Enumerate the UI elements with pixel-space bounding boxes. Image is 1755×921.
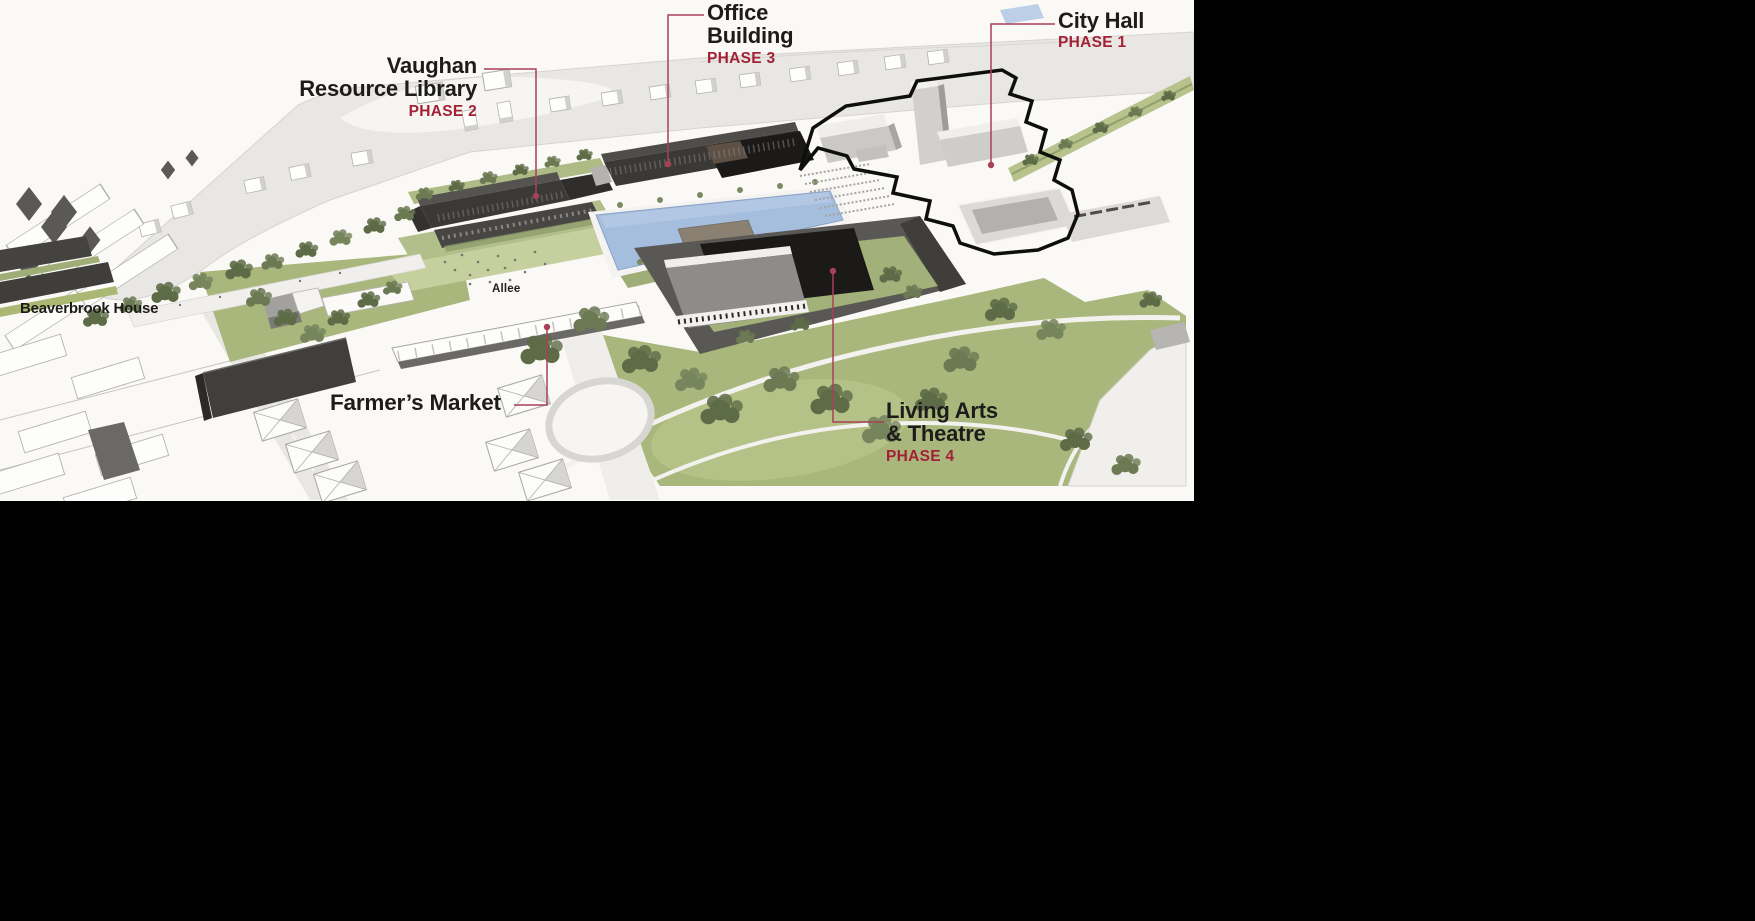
phase-tag: PHASE 3 [707,50,793,67]
label-farmers-market: Farmer’s Market [330,391,501,414]
label-text: Living Arts [886,399,998,422]
label-text: Allee [492,283,521,295]
phase-tag: PHASE 2 [255,103,477,120]
phase-tag: PHASE 4 [886,448,998,465]
label-text: City Hall [1058,9,1144,32]
label-beaverbrook-house: Beaverbrook House [20,301,158,317]
label-living-arts-theatre: Living Arts & Theatre PHASE 4 [886,399,998,465]
page: Vaughan Resource Library PHASE 2 Office … [0,0,1755,921]
label-vaughan-resource-library: Vaughan Resource Library PHASE 2 [255,54,477,120]
leader-dot-city-hall [988,162,994,168]
label-text: Vaughan [255,54,477,77]
label-text: Office [707,1,793,24]
label-text: Resource Library [255,77,477,100]
label-text: Building [707,24,793,47]
leader-dot-living-arts [830,268,836,274]
site-plan-scene [0,0,1194,501]
leader-dot-office [665,161,671,167]
leader-dot-vaughan [533,193,539,199]
label-city-hall: City Hall PHASE 1 [1058,9,1144,51]
label-text: Farmer’s Market [330,391,501,414]
leader-dot-farmers-market [544,324,550,330]
label-text: & Theatre [886,422,998,445]
label-office-building: Office Building PHASE 3 [707,1,793,67]
masterplan-rendering: Vaughan Resource Library PHASE 2 Office … [0,0,1194,501]
label-text: Beaverbrook House [20,301,158,317]
phase-tag: PHASE 1 [1058,34,1144,51]
label-allee: Allee [492,283,521,295]
